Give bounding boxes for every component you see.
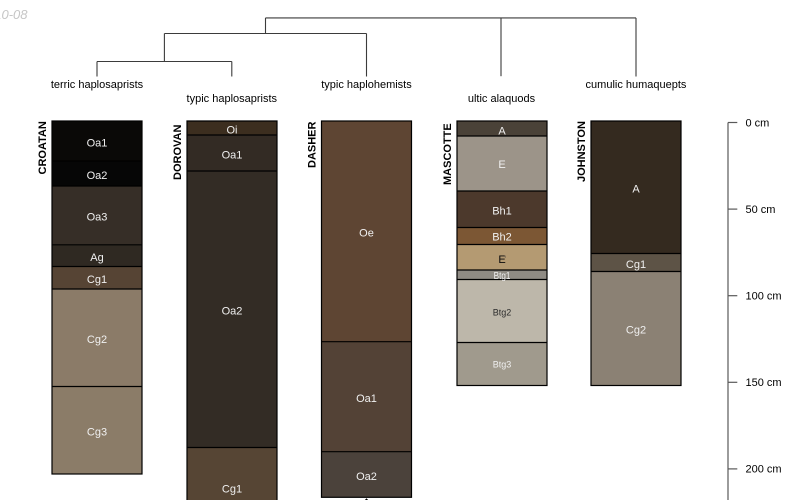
svg-text:A: A [632,184,640,196]
svg-text:DOROVAN: DOROVAN [172,125,184,180]
svg-text:Cg2: Cg2 [626,324,646,336]
svg-text:Ag: Ag [90,252,103,264]
svg-text:0 cm: 0 cm [746,117,770,129]
svg-text:ultic alaquods: ultic alaquods [468,93,536,105]
svg-text:MASCOTTE: MASCOTTE [442,123,454,185]
svg-text:100 cm: 100 cm [746,291,782,303]
svg-text:terric haplosaprists: terric haplosaprists [51,79,144,91]
svg-text:200 cm: 200 cm [746,464,782,476]
svg-text:typic haplosaprists: typic haplosaprists [187,93,278,105]
svg-text:Oa2: Oa2 [356,471,377,483]
svg-text:Bh1: Bh1 [492,206,512,218]
svg-text:JOHNSTON: JOHNSTON [576,121,588,182]
svg-text:Cg1: Cg1 [222,483,242,495]
svg-text:typic haplohemists: typic haplohemists [321,79,412,91]
svg-text:50 cm: 50 cm [746,204,776,216]
svg-text:2020-10-08: 2020-10-08 [0,7,28,22]
svg-text:Btg3: Btg3 [493,360,512,370]
svg-text:Cg2: Cg2 [87,334,107,346]
svg-text:Bh2: Bh2 [492,232,512,244]
svg-text:Oi: Oi [227,124,238,136]
svg-text:DASHER: DASHER [307,121,319,168]
svg-text:Oa2: Oa2 [87,170,108,182]
svg-text:Oe: Oe [359,228,374,240]
svg-text:CROATAN: CROATAN [37,121,49,174]
svg-text:Oa2: Oa2 [222,306,243,318]
svg-text:Btg1: Btg1 [494,271,511,282]
svg-text:E: E [498,159,505,171]
svg-text:Oa1: Oa1 [87,137,108,149]
svg-text:cumulic humaquepts: cumulic humaquepts [586,79,687,91]
svg-text:Oa1: Oa1 [356,393,377,405]
svg-text:Cg1: Cg1 [626,259,646,271]
svg-text:Oa1: Oa1 [222,149,243,161]
svg-text:Cg3: Cg3 [87,427,107,439]
svg-text:150 cm: 150 cm [746,377,782,389]
svg-text:A: A [498,126,506,138]
svg-text:Btg2: Btg2 [493,307,512,317]
svg-text:Cg1: Cg1 [87,274,107,286]
svg-text:Oa3: Oa3 [87,211,108,223]
